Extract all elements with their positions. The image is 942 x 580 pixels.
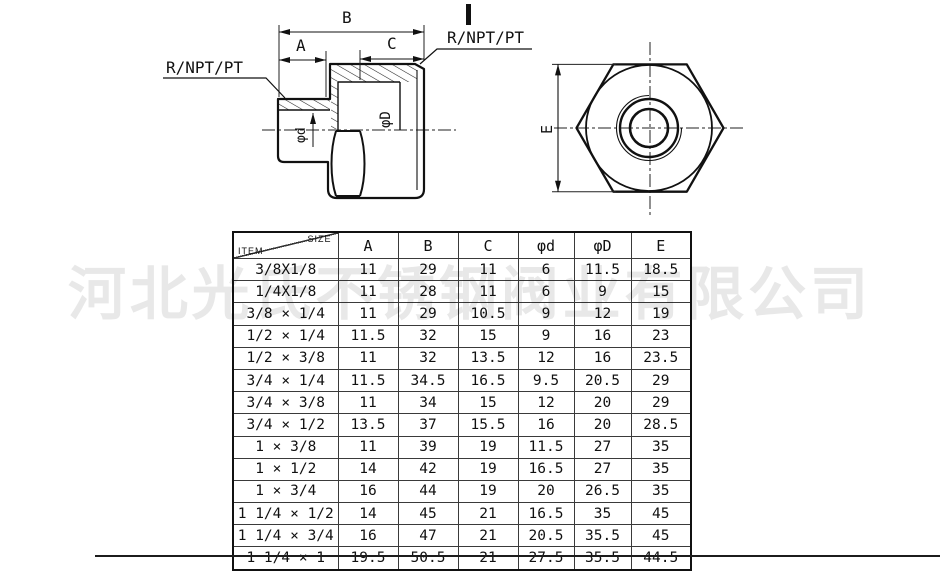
value-cell: 15: [631, 281, 691, 303]
value-cell: 16: [574, 325, 631, 347]
size-cell: 3/4 × 1/2: [233, 414, 338, 436]
size-cell: 3/4 × 1/4: [233, 369, 338, 391]
value-cell: 11: [458, 259, 518, 281]
value-cell: 20: [574, 392, 631, 414]
value-cell: 11.5: [518, 436, 574, 458]
value-cell: 20: [518, 480, 574, 502]
value-cell: 11.5: [338, 325, 398, 347]
value-cell: 50.5: [398, 547, 458, 570]
table-row: 3/8 × 1/4112910.591219: [233, 303, 691, 325]
table-row: 1/4X1/81128116915: [233, 281, 691, 303]
value-cell: 16.5: [458, 369, 518, 391]
hex-end-view: E: [538, 42, 746, 216]
value-cell: 35: [574, 503, 631, 525]
corner-size-label: SIZE: [307, 234, 331, 244]
value-cell: 11: [338, 392, 398, 414]
table-row: 1 × 3/41644192026.535: [233, 480, 691, 502]
value-cell: 14: [338, 503, 398, 525]
value-cell: 13.5: [338, 414, 398, 436]
dimension-table: SIZE ITEM A B C φd φD E 3/8X1/8112911611…: [232, 231, 692, 571]
size-cell: 1 1/4 × 1: [233, 547, 338, 570]
col-header-a: A: [338, 232, 398, 259]
value-cell: 12: [518, 347, 574, 369]
watermark-char: 公: [748, 263, 806, 327]
dim-label-b: B: [342, 8, 352, 27]
value-cell: 16: [338, 525, 398, 547]
value-cell: 16: [518, 414, 574, 436]
bottom-rule: [95, 555, 940, 557]
thread-hatch-step: [331, 82, 338, 129]
value-cell: 12: [574, 303, 631, 325]
value-cell: 20: [574, 414, 631, 436]
value-cell: 15: [458, 392, 518, 414]
value-cell: 29: [631, 392, 691, 414]
value-cell: 6: [518, 259, 574, 281]
value-cell: 39: [398, 436, 458, 458]
value-cell: 34: [398, 392, 458, 414]
value-cell: 11.5: [338, 369, 398, 391]
size-cell: 1/2 × 1/4: [233, 325, 338, 347]
page: φd φD B A C R/NPT/PT R/NPT/PT: [0, 0, 942, 580]
thread-leader-right: [420, 49, 532, 64]
value-cell: 9: [518, 303, 574, 325]
value-cell: 35: [631, 436, 691, 458]
value-cell: 16: [574, 347, 631, 369]
value-cell: 27: [574, 436, 631, 458]
table-row: 3/8X1/8112911611.518.5: [233, 259, 691, 281]
col-header-e: E: [631, 232, 691, 259]
value-cell: 15.5: [458, 414, 518, 436]
value-cell: 21: [458, 503, 518, 525]
col-header-c: C: [458, 232, 518, 259]
value-cell: 45: [631, 525, 691, 547]
value-cell: 28: [398, 281, 458, 303]
thread-hatch-body-top: [331, 64, 417, 82]
thread-leader-left: [163, 78, 285, 98]
value-cell: 28.5: [631, 414, 691, 436]
table-row: 1 × 3/811391911.52735: [233, 436, 691, 458]
value-cell: 21: [458, 547, 518, 570]
value-cell: 29: [631, 369, 691, 391]
dia-large-label: φD: [378, 111, 394, 128]
size-cell: 1 1/4 × 3/4: [233, 525, 338, 547]
value-cell: 27: [574, 458, 631, 480]
value-cell: 23.5: [631, 347, 691, 369]
value-cell: 37: [398, 414, 458, 436]
table-row: 1/2 × 3/8113213.5121623.5: [233, 347, 691, 369]
internal-thread-barrel: [332, 131, 365, 196]
watermark-char: 河: [68, 263, 126, 327]
table-row: 1 1/4 × 3/416472120.535.545: [233, 525, 691, 547]
value-cell: 35.5: [574, 547, 631, 570]
corner-item-label: ITEM: [238, 246, 264, 256]
section-view: φd φD B A C R/NPT/PT R/NPT/PT: [163, 4, 532, 198]
value-cell: 32: [398, 347, 458, 369]
value-cell: 11: [338, 281, 398, 303]
value-cell: 15: [458, 325, 518, 347]
value-cell: 23: [631, 325, 691, 347]
table-row: 1/2 × 1/411.5321591623: [233, 325, 691, 347]
value-cell: 20.5: [574, 369, 631, 391]
value-cell: 45: [398, 503, 458, 525]
value-cell: 16.5: [518, 458, 574, 480]
table-corner-cell: SIZE ITEM: [233, 232, 338, 259]
value-cell: 19: [458, 436, 518, 458]
value-cell: 35: [631, 458, 691, 480]
table-header-row: SIZE ITEM A B C φd φD E: [233, 232, 691, 259]
section-cut-mark: [466, 4, 471, 25]
watermark-char: 司: [810, 263, 868, 327]
value-cell: 35.5: [574, 525, 631, 547]
value-cell: 9: [574, 281, 631, 303]
value-cell: 11: [338, 259, 398, 281]
table-row: 1 1/4 × 119.550.52127.535.544.5: [233, 547, 691, 570]
value-cell: 6: [518, 281, 574, 303]
value-cell: 19: [458, 480, 518, 502]
value-cell: 29: [398, 303, 458, 325]
col-header-dia-dd: φD: [574, 232, 631, 259]
table-row: 3/4 × 1/213.53715.5162028.5: [233, 414, 691, 436]
value-cell: 44.5: [631, 547, 691, 570]
value-cell: 47: [398, 525, 458, 547]
thread-spec-label-left: R/NPT/PT: [166, 58, 243, 77]
value-cell: 44: [398, 480, 458, 502]
size-cell: 1 1/4 × 1/2: [233, 503, 338, 525]
value-cell: 18.5: [631, 259, 691, 281]
size-cell: 1 × 1/2: [233, 458, 338, 480]
size-cell: 1/4X1/8: [233, 281, 338, 303]
dia-small-label: φd: [294, 127, 309, 143]
value-cell: 16.5: [518, 503, 574, 525]
value-cell: 19: [631, 303, 691, 325]
value-cell: 11: [338, 436, 398, 458]
thread-hatch-small-end: [278, 99, 330, 110]
value-cell: 20.5: [518, 525, 574, 547]
table-row: 1 × 1/214421916.52735: [233, 458, 691, 480]
size-cell: 3/8 × 1/4: [233, 303, 338, 325]
value-cell: 11: [458, 281, 518, 303]
value-cell: 32: [398, 325, 458, 347]
value-cell: 11.5: [574, 259, 631, 281]
value-cell: 19: [458, 458, 518, 480]
value-cell: 13.5: [458, 347, 518, 369]
value-cell: 34.5: [398, 369, 458, 391]
size-cell: 1/2 × 3/8: [233, 347, 338, 369]
technical-drawing: φd φD B A C R/NPT/PT R/NPT/PT: [0, 0, 942, 230]
table-row: 3/4 × 3/8113415122029: [233, 392, 691, 414]
value-cell: 19.5: [338, 547, 398, 570]
value-cell: 16: [338, 480, 398, 502]
value-cell: 14: [338, 458, 398, 480]
value-cell: 9: [518, 325, 574, 347]
size-cell: 3/8X1/8: [233, 259, 338, 281]
watermark-char: 限: [686, 263, 744, 327]
value-cell: 11: [338, 303, 398, 325]
size-cell: 3/4 × 3/8: [233, 392, 338, 414]
value-cell: 42: [398, 458, 458, 480]
col-header-b: B: [398, 232, 458, 259]
value-cell: 45: [631, 503, 691, 525]
value-cell: 29: [398, 259, 458, 281]
dim-label-e: E: [538, 125, 556, 134]
value-cell: 11: [338, 347, 398, 369]
value-cell: 27.5: [518, 547, 574, 570]
col-header-dia-d: φd: [518, 232, 574, 259]
value-cell: 26.5: [574, 480, 631, 502]
table-row: 1 1/4 × 1/214452116.53545: [233, 503, 691, 525]
value-cell: 21: [458, 525, 518, 547]
value-cell: 12: [518, 392, 574, 414]
value-cell: 9.5: [518, 369, 574, 391]
value-cell: 35: [631, 480, 691, 502]
size-cell: 1 × 3/8: [233, 436, 338, 458]
dim-label-a: A: [296, 36, 306, 55]
thread-spec-label-right: R/NPT/PT: [447, 28, 524, 47]
dim-label-c: C: [387, 34, 397, 53]
value-cell: 10.5: [458, 303, 518, 325]
watermark-char: 北: [130, 263, 188, 327]
size-cell: 1 × 3/4: [233, 480, 338, 502]
table-row: 3/4 × 1/411.534.516.59.520.529: [233, 369, 691, 391]
